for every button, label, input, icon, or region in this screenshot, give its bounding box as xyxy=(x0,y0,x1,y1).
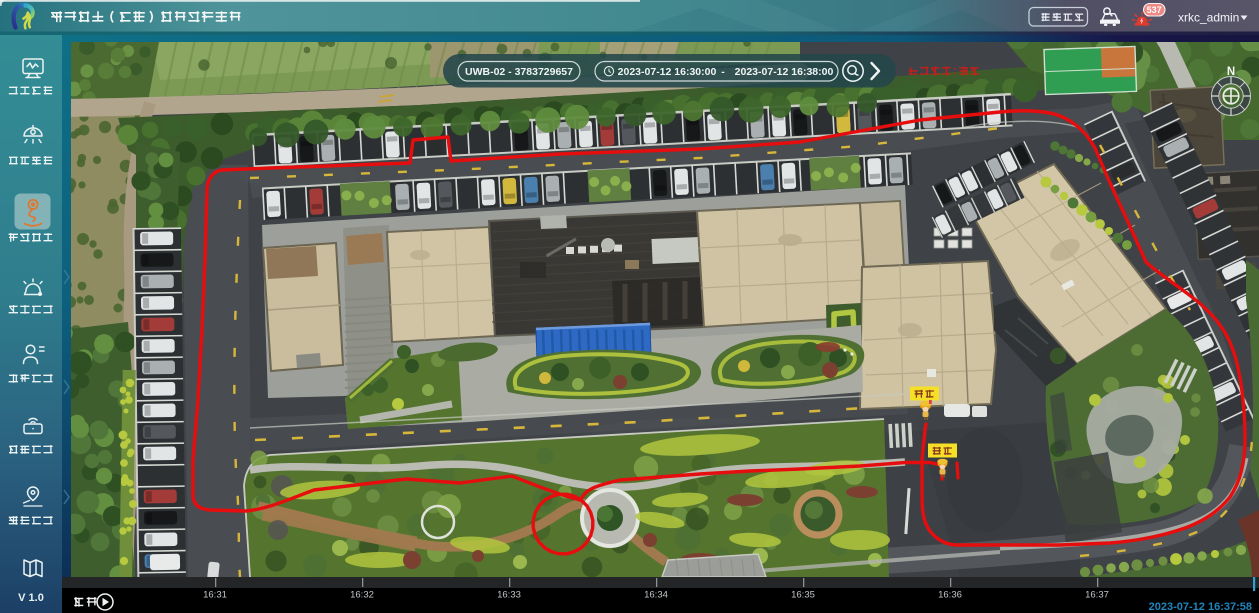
svg-text:UWB-02 - 3783729657: UWB-02 - 3783729657 xyxy=(465,66,573,78)
svg-text:16:37: 16:37 xyxy=(1085,590,1109,601)
svg-text:16:36: 16:36 xyxy=(938,590,962,601)
svg-text:537: 537 xyxy=(1147,5,1162,15)
svg-text:16:35: 16:35 xyxy=(791,590,815,601)
svg-text:V 1.0: V 1.0 xyxy=(18,592,44,604)
svg-text:-: - xyxy=(721,66,725,78)
svg-text:2023-07-12 16:30:00: 2023-07-12 16:30:00 xyxy=(618,66,717,78)
svg-text:2023-07-12 16:38:00: 2023-07-12 16:38:00 xyxy=(735,66,834,78)
svg-text:16:31: 16:31 xyxy=(203,590,227,601)
svg-text:2023-07-12 16:37:58: 2023-07-12 16:37:58 xyxy=(1149,601,1252,613)
svg-text:xrkc_admin: xrkc_admin xyxy=(1178,11,1239,25)
svg-text:16:33: 16:33 xyxy=(497,590,521,601)
svg-text:16:32: 16:32 xyxy=(350,590,374,601)
svg-text:16:34: 16:34 xyxy=(644,590,668,601)
